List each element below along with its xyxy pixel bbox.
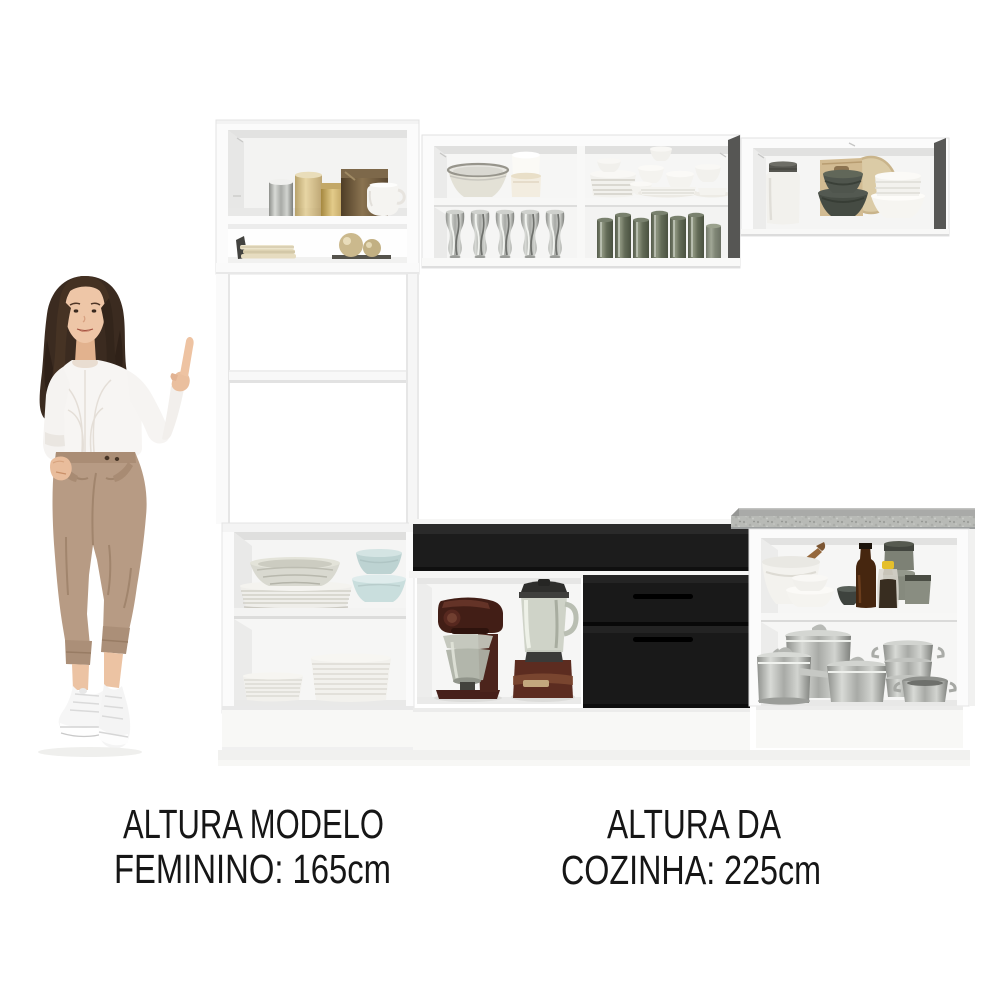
svg-text:FEMININO: 165cm: FEMININO: 165cm bbox=[114, 846, 391, 892]
svg-text:ALTURA MODELO: ALTURA MODELO bbox=[123, 801, 384, 847]
svg-text:COZINHA: 225cm: COZINHA: 225cm bbox=[561, 847, 821, 893]
svg-text:ALTURA DA: ALTURA DA bbox=[607, 801, 781, 847]
